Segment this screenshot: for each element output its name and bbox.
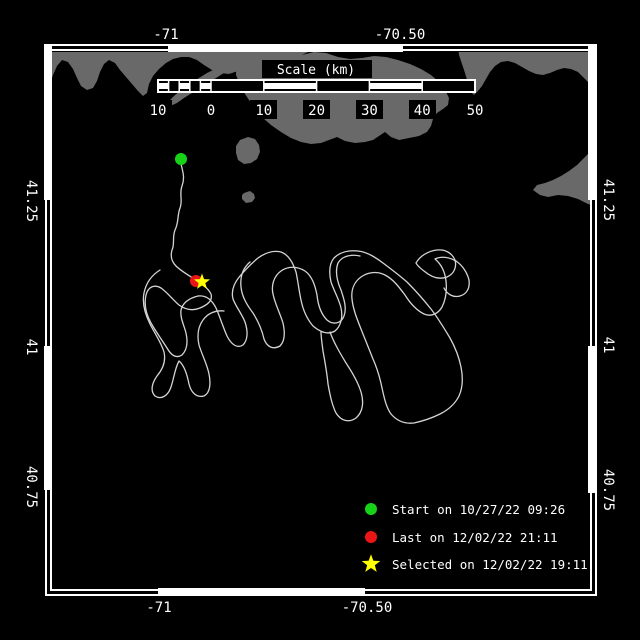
scale-tick-label: 0	[207, 103, 215, 119]
scale-bar-title: Scale (km)	[277, 63, 355, 78]
land-polygon-tiny-island	[242, 191, 255, 203]
right-axis-label-lat2: 41	[600, 337, 616, 354]
scale-bar-segment	[369, 83, 422, 89]
legend: Start on 10/27/22 09:26 Last on 12/02/22…	[362, 502, 588, 572]
tracking-map: Scale (km) 10 0 10 20 30 40 50 Start on …	[0, 0, 640, 640]
bottom-axis-label-lon2: -70.50	[342, 600, 393, 616]
track-lines	[143, 164, 469, 423]
left-axis-label-lat3: 40.75	[23, 466, 39, 508]
track-path	[143, 270, 224, 398]
top-axis-label-lon1: -71	[153, 27, 178, 43]
track-path	[241, 255, 360, 347]
left-axis-label-lat2: 41	[23, 339, 39, 356]
track-path	[416, 250, 456, 278]
right-axis-label-lat3: 40.75	[600, 469, 616, 511]
legend-red-dot-icon	[365, 531, 377, 543]
scale-tick-label: 10	[150, 103, 167, 119]
scale-bar-segment	[179, 83, 190, 89]
top-axis-label-lon2: -70.50	[375, 27, 426, 43]
legend-yellow-star-icon	[362, 554, 381, 572]
legend-start-label: Start on 10/27/22 09:26	[392, 502, 565, 517]
legend-selected-label: Selected on 12/02/22 19:11	[392, 557, 588, 572]
scale-bar-segment	[158, 83, 169, 89]
bottom-axis-label-lon1: -71	[146, 600, 171, 616]
land-polygon-northeast	[458, 48, 596, 95]
track-path	[145, 164, 469, 423]
scale-bar-segment	[200, 83, 211, 89]
scale-tick-label: 30	[361, 103, 378, 119]
right-axis-label-lat1: 41.25	[600, 179, 616, 221]
track-path	[321, 332, 363, 421]
map-canvas: Scale (km) 10 0 10 20 30 40 50 Start on …	[0, 0, 640, 640]
scale-tick-label: 50	[467, 103, 484, 119]
map-content: Scale (km) 10 0 10 20 30 40 50 Start on …	[47, 48, 596, 572]
scale-bar-segment	[264, 83, 317, 89]
land-polygon-east-island	[533, 150, 596, 206]
land-polygon-small-island	[236, 137, 260, 164]
legend-last-label: Last on 12/02/22 21:11	[392, 530, 558, 545]
scale-tick-label: 10	[255, 103, 272, 119]
scale-tick-label: 20	[308, 103, 325, 119]
scale-tick-label: 40	[414, 103, 431, 119]
start-marker	[175, 153, 187, 165]
left-axis-label-lat1: 41.25	[23, 180, 39, 222]
legend-green-dot-icon	[365, 503, 377, 515]
